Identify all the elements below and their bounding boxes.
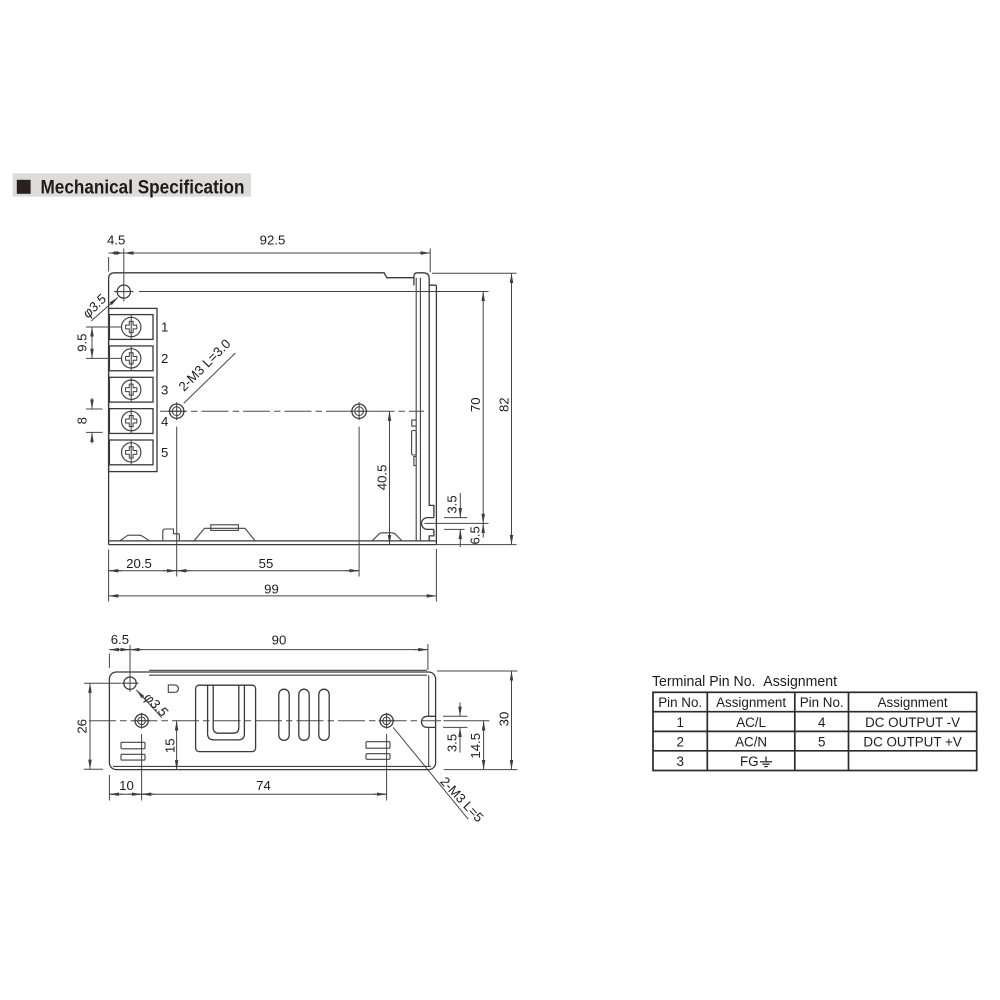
svg-text:55: 55 [259,556,274,571]
svg-text:14.5: 14.5 [468,733,483,759]
svg-text:Terminal Pin No. Assignment: Terminal Pin No. Assignment [652,673,838,690]
svg-text:40.5: 40.5 [374,465,389,491]
svg-text:6.5: 6.5 [111,632,129,647]
svg-text:2: 2 [161,351,168,366]
svg-text:3.5: 3.5 [445,495,460,513]
svg-text:8: 8 [75,417,90,424]
svg-text:Pin No.: Pin No. [658,695,702,710]
svg-text:30: 30 [497,712,512,727]
svg-text:DC OUTPUT -V: DC OUTPUT -V [865,715,960,730]
svg-text:2-M3 L=3.0: 2-M3 L=3.0 [176,336,234,394]
svg-text:FG: FG [740,754,759,769]
svg-text:4.5: 4.5 [107,232,125,247]
svg-text:9.5: 9.5 [75,334,90,352]
svg-text:15: 15 [163,738,178,753]
svg-text:1: 1 [676,715,683,730]
svg-text:2: 2 [676,734,683,749]
svg-text:DC OUTPUT +V: DC OUTPUT +V [863,734,961,749]
svg-text:Mechanical Specification: Mechanical Specification [41,177,245,199]
svg-text:26: 26 [74,719,89,734]
svg-text:3: 3 [161,382,168,397]
svg-text:4: 4 [161,414,168,429]
svg-text:1: 1 [161,320,168,335]
svg-text:2-M3 L=5: 2-M3 L=5 [437,774,486,825]
svg-text:90: 90 [272,633,287,648]
svg-text:3: 3 [676,754,683,769]
svg-text:6.5: 6.5 [468,526,483,544]
svg-text:4: 4 [818,715,826,730]
svg-text:Assignment: Assignment [878,695,948,710]
svg-text:92.5: 92.5 [260,232,286,247]
svg-text:AC/L: AC/L [736,715,766,730]
svg-text:20.5: 20.5 [126,556,152,571]
svg-text:5: 5 [818,734,825,749]
svg-text:5: 5 [161,445,168,460]
svg-text:AC/N: AC/N [735,734,767,749]
svg-text:82: 82 [496,397,511,412]
svg-text:Assignment: Assignment [716,695,786,710]
svg-text:70: 70 [468,397,483,412]
svg-text:10: 10 [119,778,134,793]
svg-text:3.5: 3.5 [445,734,460,752]
svg-text:74: 74 [256,778,271,793]
svg-text:99: 99 [264,581,279,596]
svg-text:Pin No.: Pin No. [800,695,844,710]
svg-text:φ3.5: φ3.5 [80,291,110,321]
